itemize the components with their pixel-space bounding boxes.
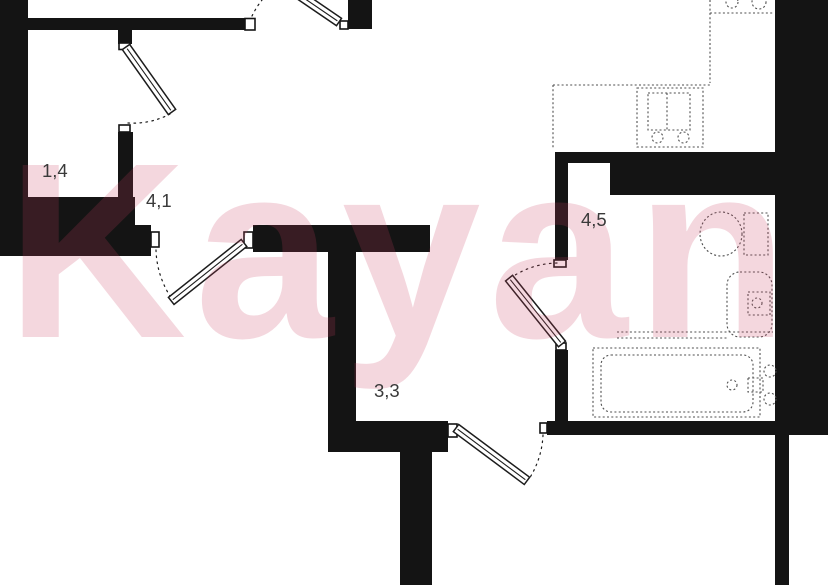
wall-top	[28, 18, 245, 30]
kitchen-sink-icon	[726, 0, 738, 8]
wall-bath-partition-lower	[555, 350, 568, 425]
washbasin-icon	[727, 272, 772, 337]
wall-hall-stub	[100, 225, 151, 256]
door-leaf	[453, 424, 529, 484]
wall-mid-vertical	[328, 252, 356, 421]
bath-faucet-knob-icon	[764, 365, 776, 377]
door-leaf	[168, 239, 246, 304]
room-label-bathroom: 4,5	[581, 211, 607, 230]
stove-oven-icon	[648, 93, 690, 130]
walls	[0, 0, 828, 585]
bath-faucet-icon	[748, 378, 763, 392]
wall-left-exterior	[0, 0, 28, 197]
kitchen-sink-icon	[752, 0, 766, 9]
bathtub-inner	[601, 355, 753, 412]
toilet-tank-icon	[744, 213, 768, 255]
wall-right-lower	[775, 435, 789, 585]
door-jamb	[119, 125, 130, 132]
stove-burner-icon	[678, 132, 689, 143]
door-swing-arc	[529, 435, 543, 479]
toilet-icon	[700, 212, 742, 256]
room-label-corridor: 3,3	[374, 382, 400, 401]
wall-right-exterior	[775, 0, 828, 435]
wall-closet-lower-stub	[118, 132, 133, 197]
washbasin-drain-icon	[752, 298, 762, 308]
door-jamb	[245, 19, 255, 31]
wall-bath-bottom	[547, 421, 777, 435]
door-leaf	[122, 44, 175, 114]
wall-kitchen-bath-thick	[610, 163, 777, 195]
door-leaf	[292, 0, 342, 26]
door-swing-arc	[252, 0, 262, 16]
door-leaf	[506, 275, 566, 346]
door-jamb	[151, 232, 159, 247]
wall-corridor-step	[328, 421, 448, 452]
door-swing-arc	[156, 250, 172, 299]
stove-burner-icon	[652, 132, 663, 143]
bathroom-fixtures	[593, 212, 776, 417]
washbasin-inner	[748, 292, 770, 315]
wall-kitchen-bath-thin	[555, 152, 777, 163]
floor-plan	[0, 0, 828, 585]
door-jamb	[340, 21, 348, 29]
door-jamb	[540, 423, 547, 433]
wall-bottom-vertical	[400, 452, 432, 585]
bath-faucet-knob-icon	[764, 393, 776, 405]
wall-bath-partition-upper	[555, 152, 568, 260]
stove-icon	[637, 88, 703, 147]
door-swing-arc	[512, 263, 557, 277]
bathtub-drain-icon	[727, 380, 737, 390]
room-label-closet: 1,4	[42, 162, 68, 181]
wall-mid-horizontal	[253, 225, 430, 252]
room-label-hall: 4,1	[146, 192, 172, 211]
kitchen-fixtures	[553, 0, 773, 148]
bathtub-icon	[593, 348, 760, 417]
door-swing-arc	[128, 114, 170, 123]
floorplan-canvas: 1,4 4,1 3,3 4,5 Kayan	[0, 0, 828, 585]
wall-closet-jamb-stub	[118, 30, 132, 44]
